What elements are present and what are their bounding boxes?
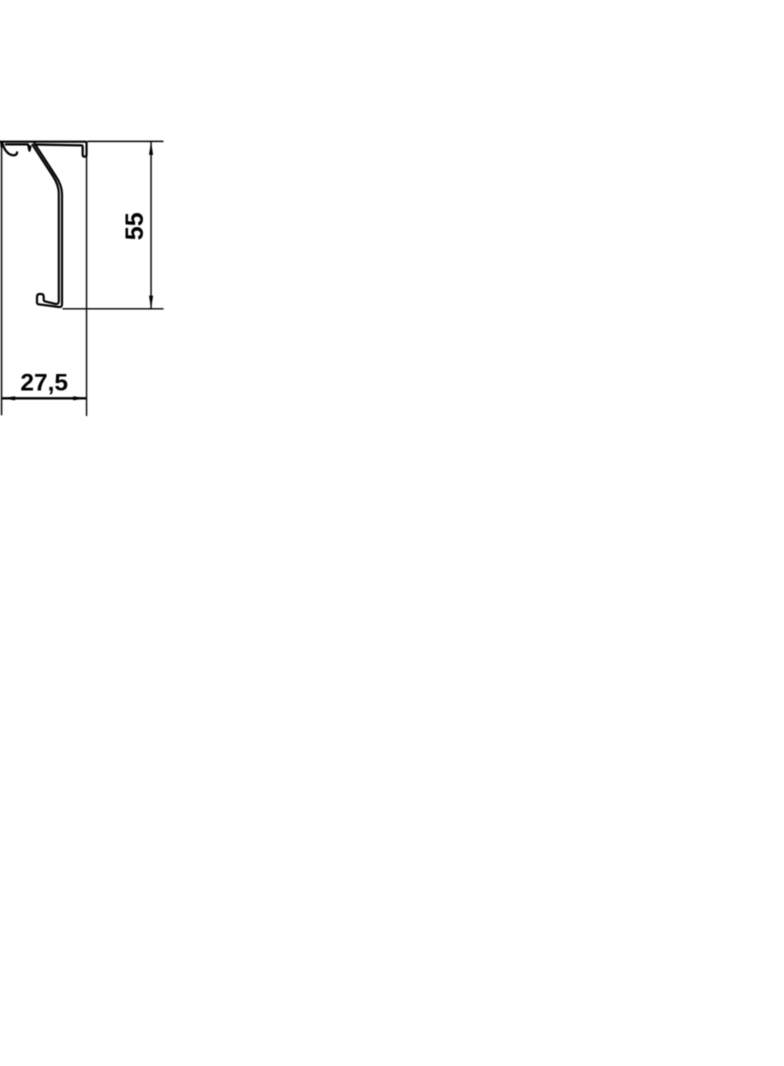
svg-text:55: 55 <box>121 212 149 240</box>
svg-text:27,5: 27,5 <box>20 369 68 396</box>
